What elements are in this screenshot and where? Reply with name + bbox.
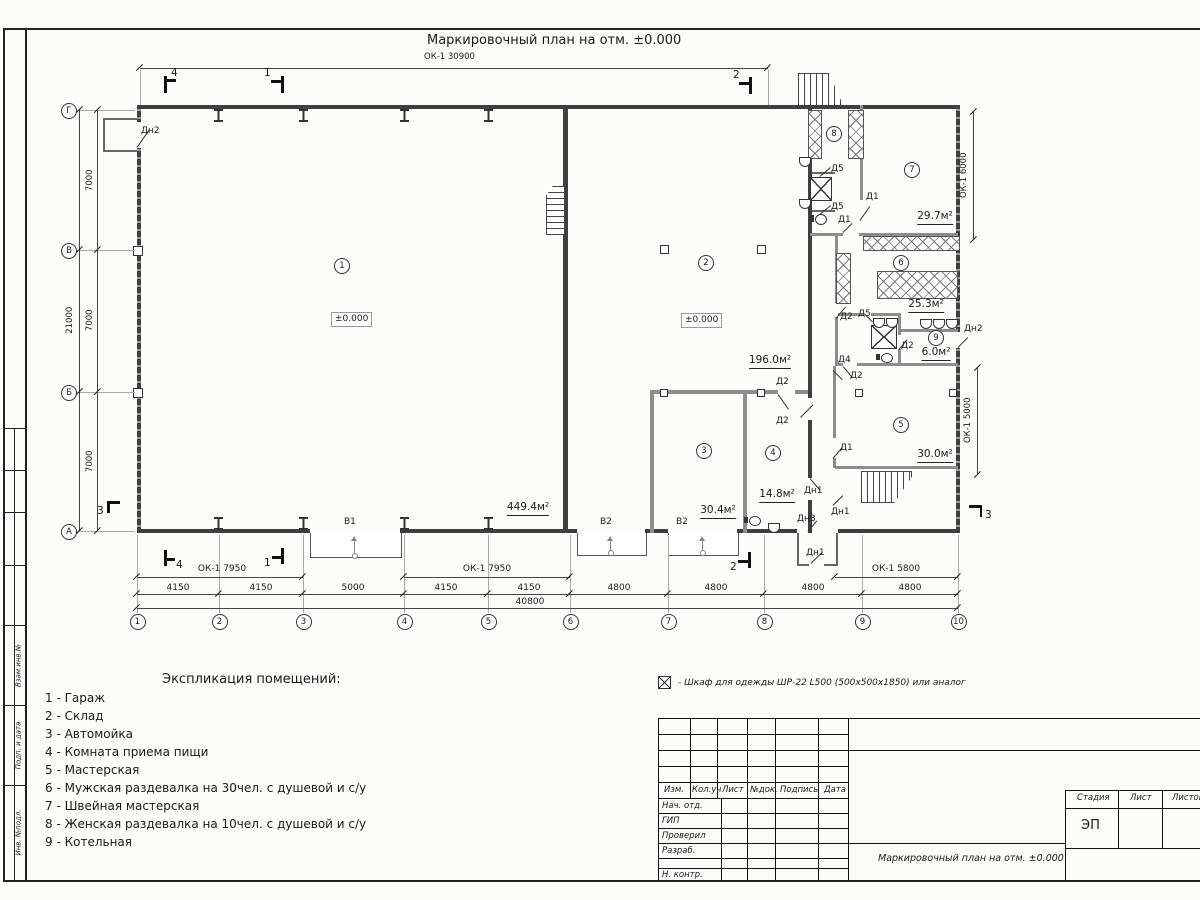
section-marker <box>739 82 751 85</box>
stamp-label-podp: Подп. и дата <box>16 711 23 781</box>
locker-row <box>808 110 822 159</box>
gate-pivot <box>700 550 706 556</box>
titleblock-line <box>1162 790 1163 848</box>
room-number: 8 <box>826 126 842 142</box>
dim-line <box>97 110 98 531</box>
grid-axis: 5 <box>481 614 497 630</box>
door-label: Дн1 <box>831 508 850 517</box>
titleblock-line <box>658 798 848 799</box>
door-label: Дн3 <box>797 515 816 524</box>
grid-axis: 3 <box>296 614 312 630</box>
role-label: Нач. отд. <box>662 802 703 811</box>
room-number: 6 <box>893 255 909 271</box>
wall <box>137 105 141 533</box>
room-number: 1 <box>334 258 350 274</box>
rev-header: Изм. <box>664 786 684 795</box>
section-marker <box>164 79 176 82</box>
section-number: 1 <box>264 68 271 79</box>
section-number: 4 <box>176 560 183 571</box>
gate-arrow-tip <box>607 536 613 541</box>
grid-axis: 8 <box>757 614 773 630</box>
dim-total: 21000 <box>66 298 75 342</box>
sheet-label: Лист <box>1130 794 1152 803</box>
dim-value: 4150 <box>167 584 190 593</box>
extension-line <box>862 535 863 613</box>
wall <box>838 529 960 533</box>
titleblock-line <box>658 828 848 829</box>
gate-pivot <box>608 550 614 556</box>
dim-value: 4800 <box>899 584 922 593</box>
grid-axis: 4 <box>397 614 413 630</box>
column-symbol <box>133 246 143 256</box>
dim-value: 7000 <box>86 298 95 342</box>
window-dim: ОК-1 7950 <box>463 565 511 574</box>
room-number: 5 <box>893 417 909 433</box>
grid-axis: 2 <box>212 614 228 630</box>
titleblock-line <box>1065 790 1200 791</box>
dim-line <box>835 577 958 578</box>
dim-tick <box>970 236 977 243</box>
section-number: 3 <box>97 506 104 517</box>
level-mark: ±0.000 <box>681 313 722 328</box>
titleblock-line <box>818 718 819 880</box>
titleblock-line <box>658 843 1065 844</box>
titleblock-line <box>848 718 849 880</box>
dim-line <box>137 577 303 578</box>
extension-line <box>140 70 141 105</box>
explication-item: 7 - Швейная мастерская <box>45 800 199 812</box>
door-label: Д2 <box>850 372 863 381</box>
titleblock-line <box>1065 790 1066 880</box>
column-symbol <box>400 109 409 122</box>
section-marker <box>749 77 752 94</box>
column-symbol <box>299 517 308 530</box>
shower-cabin <box>871 325 897 349</box>
wall <box>645 529 668 533</box>
room-number: 9 <box>928 330 944 346</box>
section-marker <box>272 556 283 559</box>
explication-item: 3 - Автомойка <box>45 728 133 740</box>
titleblock-line <box>658 718 1200 719</box>
wall <box>563 105 568 533</box>
rev-header: №док. <box>750 786 778 795</box>
explication-item: 4 - Комната приема пищи <box>45 746 208 758</box>
wall-ladder <box>546 186 565 235</box>
room-area: 14.8м² <box>759 489 795 503</box>
room-number: 4 <box>765 445 781 461</box>
window-dim: ОК-1 7950 <box>198 565 246 574</box>
exterior-stair <box>798 73 841 107</box>
partition <box>835 466 958 469</box>
explication-item: 1 - Гараж <box>45 692 105 704</box>
room-area: 25.3м² <box>908 299 944 313</box>
explication-item: 2 - Склад <box>45 710 104 722</box>
role-label: ГИП <box>662 817 680 826</box>
stage-value: ЭП <box>1081 818 1100 833</box>
dim-line <box>137 608 958 609</box>
window-dim: ОК-1 6000 <box>960 145 969 205</box>
level-mark: ±0.000 <box>331 312 372 327</box>
explication-item: 8 - Женская раздевалка на 10чел. с душев… <box>45 818 366 830</box>
titleblock-line <box>1118 790 1119 848</box>
stamp-line <box>3 625 25 626</box>
door-label: Д5 <box>831 203 844 212</box>
dim-line <box>140 68 768 69</box>
drawing-sheet: Взам.инв.№ Подп. и дата Инв. №подл. Марк… <box>0 0 1200 900</box>
stamp-line <box>3 470 25 471</box>
toilet <box>749 516 761 526</box>
room-area: 30.4м² <box>700 505 736 519</box>
extension-line <box>668 535 669 613</box>
sheets-label: Листов <box>1172 794 1200 803</box>
column-symbol <box>400 517 409 530</box>
dim-value: 4800 <box>705 584 728 593</box>
locker-row <box>877 271 958 299</box>
toilet-tank <box>876 354 880 360</box>
locker-row <box>848 110 864 159</box>
frame-line <box>3 880 1200 882</box>
dim-value: 4150 <box>250 584 273 593</box>
extension-line <box>768 70 769 105</box>
titleblock-line <box>658 858 848 859</box>
door-label: Д1 <box>840 444 853 453</box>
grid-axis: 9 <box>855 614 871 630</box>
grid-axis: 7 <box>661 614 677 630</box>
vestibule-wall <box>797 533 799 565</box>
toilet-tank <box>744 517 748 523</box>
dim-line <box>973 112 974 240</box>
titleblock-line <box>658 813 848 814</box>
room-number: 7 <box>904 162 920 178</box>
locker-row <box>836 253 851 304</box>
grid-axis: В <box>61 243 77 259</box>
column-symbol <box>757 245 766 254</box>
gate-arrow-tip <box>351 536 357 541</box>
explication-item: 9 - Котельная <box>45 836 132 848</box>
explication-item: 5 - Мастерская <box>45 764 139 776</box>
room-area: 29.7м² <box>917 211 953 225</box>
section-number: 4 <box>171 68 178 79</box>
stamp-line <box>3 565 25 566</box>
room-number: 2 <box>698 255 714 271</box>
titleblock-line <box>658 750 1200 751</box>
vestibule-wall <box>836 533 838 565</box>
section-marker <box>281 76 284 93</box>
section-number: 1 <box>264 558 271 569</box>
gate-label: В1 <box>344 518 356 527</box>
porch-wall <box>103 150 137 152</box>
room-area: 196.0м² <box>749 355 791 369</box>
partition <box>871 313 901 316</box>
section-number: 3 <box>985 510 992 521</box>
frame-line <box>25 28 27 882</box>
section-marker <box>107 501 110 513</box>
frame-line <box>3 28 5 882</box>
dim-value: 7000 <box>86 158 95 202</box>
frame-line <box>3 28 1200 30</box>
dim-value: 4150 <box>518 584 541 593</box>
partition <box>810 233 843 236</box>
grid-axis: 10 <box>951 614 967 630</box>
section-number: 2 <box>733 70 740 81</box>
dim-value: 4800 <box>608 584 631 593</box>
door-label: Дн1 <box>804 487 823 496</box>
wall <box>137 105 960 109</box>
top-window-dim: ОК-1 30900 <box>424 52 475 62</box>
wall <box>137 529 310 533</box>
stamp-line <box>3 512 25 513</box>
titleblock-line <box>721 798 722 880</box>
stamp-label-vzam: Взам.инв.№ <box>16 631 23 701</box>
column-symbol <box>484 517 493 530</box>
gate-label: В2 <box>600 518 612 527</box>
titleblock-line <box>658 766 848 767</box>
dim-value: 5000 <box>342 584 365 593</box>
titleblock-line <box>658 868 848 869</box>
section-marker <box>980 505 983 517</box>
porch-wall <box>103 118 105 152</box>
legend-text: - Шкаф для одежды ШР-22 L500 (500х500х18… <box>678 678 966 688</box>
titleblock-line <box>690 718 691 798</box>
section-number: 2 <box>730 562 737 573</box>
column-symbol <box>855 389 863 397</box>
room-number: 3 <box>696 443 712 459</box>
shower-cabin <box>810 177 832 201</box>
titleblock-line <box>747 718 748 880</box>
door-label: Д2 <box>840 313 853 322</box>
extension-line <box>488 535 489 613</box>
dim-value: 4150 <box>435 584 458 593</box>
door-label: Дн1 <box>806 549 825 558</box>
stamp-line <box>3 705 25 706</box>
toilet <box>881 353 893 363</box>
door-label: Д5 <box>831 165 844 174</box>
role-label: Разраб. <box>662 847 695 856</box>
rev-header: Кол.уч <box>692 786 721 795</box>
vestibule-wall <box>824 564 838 566</box>
dim-value: 7000 <box>86 439 95 483</box>
door-label: Дн2 <box>141 127 160 136</box>
sink <box>933 319 945 329</box>
wall <box>808 105 812 533</box>
rev-header: Лист <box>722 786 744 795</box>
dim-line <box>977 368 978 475</box>
room-area: 6.0м² <box>922 347 951 361</box>
dim-tick <box>974 471 981 478</box>
grid-axis: А <box>61 524 77 540</box>
room-area: 449.4м² <box>507 502 549 516</box>
room-area: 30.0м² <box>917 449 953 463</box>
column-symbol <box>660 245 669 254</box>
extension-line <box>764 535 765 613</box>
role-label: Н. контр. <box>662 871 703 880</box>
dim-total: 40800 <box>516 598 545 607</box>
column-symbol <box>299 109 308 122</box>
toilet <box>815 214 827 225</box>
grid-axis: Б <box>61 385 77 401</box>
door-leaf <box>777 394 788 409</box>
door-label: Д5 <box>858 310 871 319</box>
grid-axis: 6 <box>563 614 579 630</box>
dim-line <box>79 110 80 531</box>
locker-row <box>863 236 960 251</box>
door-label: Д2 <box>776 417 789 426</box>
door-leaf <box>833 495 844 506</box>
grid-axis: 1 <box>130 614 146 630</box>
column-symbol <box>484 109 493 122</box>
vestibule-wall <box>797 564 809 566</box>
column-symbol <box>949 389 957 397</box>
door-label: Д4 <box>838 356 851 365</box>
dim-line <box>404 577 570 578</box>
column-symbol <box>660 389 668 397</box>
stamp-line <box>3 785 25 786</box>
extension-line <box>77 392 135 393</box>
role-label: Проверил <box>662 832 706 841</box>
porch-wall <box>103 118 137 120</box>
page-title: Маркировочный план на отм. ±0.000 <box>427 33 681 48</box>
extension-line <box>77 250 135 251</box>
doc-title: Маркировочный план на отм. ±0.000 <box>878 853 1064 864</box>
titleblock-line <box>1065 808 1200 809</box>
explication-title: Экспликация помещений: <box>162 672 341 687</box>
door-label: Д2 <box>901 342 914 351</box>
dim-value: 4800 <box>802 584 825 593</box>
stage-label: Стадия <box>1077 794 1110 803</box>
rev-header: Дата <box>824 786 846 795</box>
gate-arrow-tip <box>699 536 705 541</box>
titleblock-line <box>1065 848 1200 849</box>
column-symbol <box>214 109 223 122</box>
grid-axis: Г <box>61 103 77 119</box>
partition <box>795 390 808 394</box>
titleblock-line <box>658 782 848 783</box>
rev-header: Подпись <box>780 786 818 795</box>
column-symbol <box>757 389 765 397</box>
door-label: Д2 <box>776 378 789 387</box>
titleblock-line <box>775 718 776 880</box>
toilet-tank <box>810 215 814 222</box>
titleblock-line <box>658 718 659 880</box>
stamp-line <box>3 428 25 429</box>
gate-label: В2 <box>676 518 688 527</box>
titleblock-line <box>658 734 848 735</box>
extension-line <box>77 531 135 532</box>
window-dim: ОК-1 5800 <box>872 565 920 574</box>
door-label: Дн2 <box>964 325 983 334</box>
extension-line <box>219 535 220 613</box>
interior-stair <box>861 471 912 503</box>
door-label: Д1 <box>838 216 851 225</box>
section-marker <box>271 80 283 83</box>
stamp-label-inv: Инв. №подл. <box>16 798 23 868</box>
extension-line <box>77 110 135 111</box>
explication-item: 6 - Мужская раздевалка на 30чел. с душев… <box>45 782 366 794</box>
window-dim: ОК-1 5000 <box>964 390 973 450</box>
wardrobe-legend-icon <box>658 676 671 689</box>
section-marker <box>164 558 175 561</box>
column-symbol <box>214 517 223 530</box>
partition <box>650 394 654 533</box>
door-label: Д1 <box>866 193 879 202</box>
section-marker <box>738 560 749 563</box>
sink <box>920 319 932 329</box>
gate-pivot <box>352 553 358 559</box>
column-symbol <box>133 388 143 398</box>
partition <box>743 394 747 533</box>
dim-line <box>137 594 958 595</box>
